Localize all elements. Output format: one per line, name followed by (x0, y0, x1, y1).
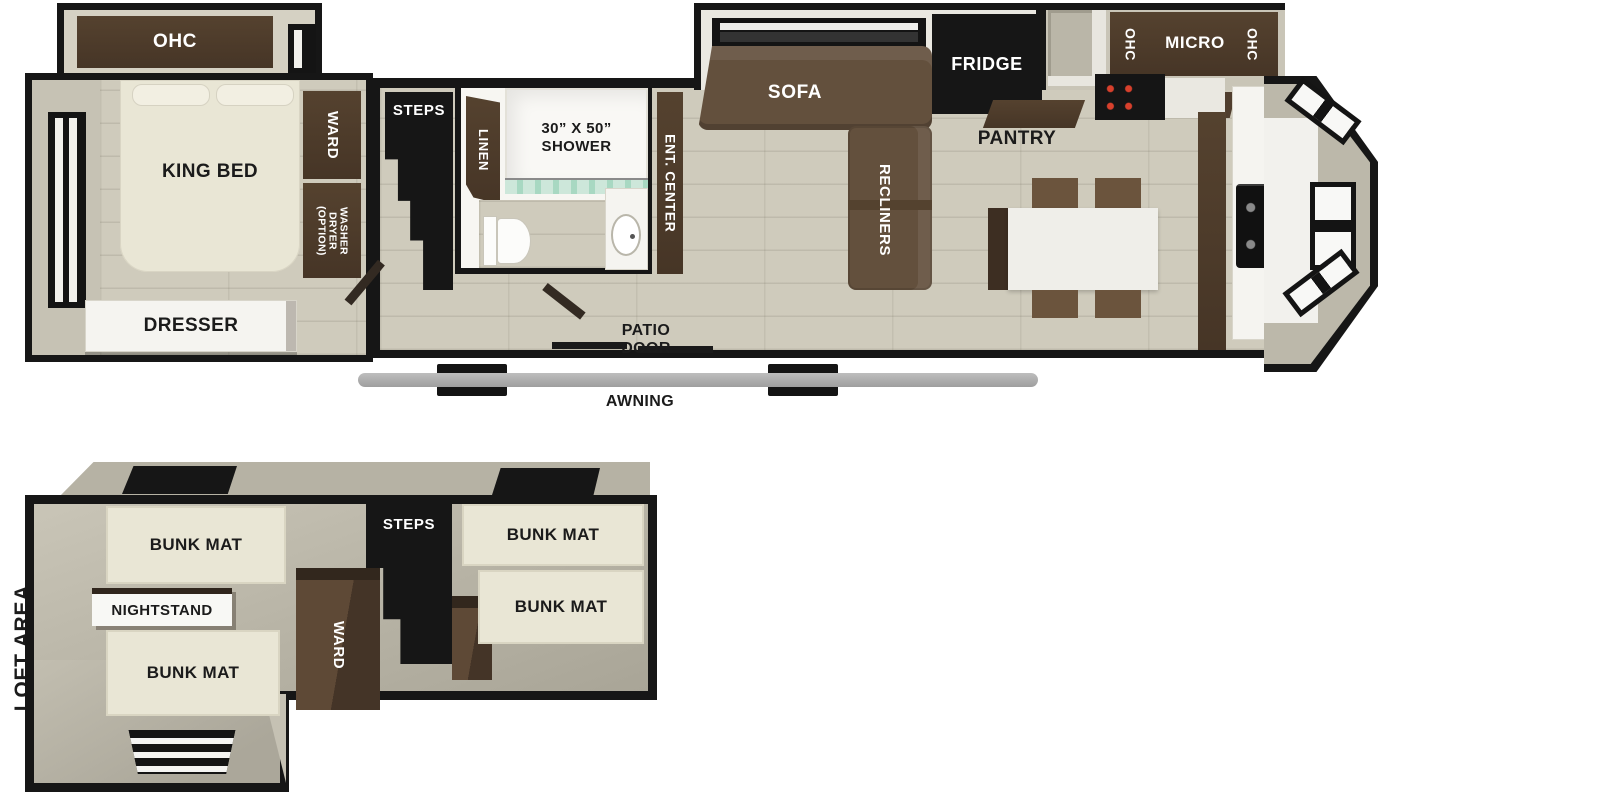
shower-label: 30” X 50” SHOWER (505, 118, 648, 158)
pantry-shelf (983, 100, 1085, 128)
toilet-icon (483, 216, 497, 266)
patio-door-label: PATIO DOOR (596, 330, 696, 350)
bunk-mat-ul-text: BUNK MAT (150, 535, 243, 555)
window-pane (720, 23, 918, 30)
bunk-mat-lower-right: BUNK MAT (478, 570, 644, 644)
ohc-left-text: OHC (1123, 28, 1138, 61)
bedroom-ward-cabinet: WARD (303, 91, 361, 179)
ent-center-label: ENT. CENTER (663, 134, 678, 232)
window-pane (69, 118, 77, 302)
washer-dryer-label: WASHER DRYER (OPTION) (315, 206, 348, 256)
micro-text: MICRO (1165, 33, 1225, 53)
ohc-right-text: OHC (1245, 28, 1260, 61)
toilet-bowl-icon (497, 218, 531, 264)
loft-vent-icon (124, 730, 240, 774)
washer-dryer-cabinet: WASHER DRYER (OPTION) (303, 183, 361, 278)
bunk-mat-ur-text: BUNK MAT (507, 525, 600, 545)
pillow (216, 84, 294, 106)
skylight-icon (492, 468, 600, 495)
bunk-mat-upper-left: BUNK MAT (106, 506, 286, 584)
recliners-label: RECLINERS (862, 140, 906, 280)
window-glass (720, 32, 918, 42)
ent-center-cabinet: ENT. CENTER (657, 92, 683, 274)
steps-loft-label: STEPS (366, 514, 452, 534)
bunk-mat-ll-text: BUNK MAT (147, 663, 240, 683)
bunk-mat-lr-text: BUNK MAT (515, 597, 608, 617)
dining-chair (1032, 178, 1078, 208)
nightstand: NIGHTSTAND (92, 588, 232, 626)
dining-chair (1095, 178, 1141, 208)
fridge-label: FRIDGE (951, 54, 1023, 75)
steps-main-text: STEPS (393, 102, 445, 119)
sofa-label: SOFA (730, 82, 860, 104)
dresser: DRESSER (85, 300, 297, 352)
linen-cabinet: LINEN (466, 96, 500, 204)
ward-label: WARD (324, 111, 340, 159)
drain-icon (630, 234, 635, 239)
nightstand-text: NIGHTSTAND (111, 602, 212, 619)
recliners-text: RECLINERS (876, 164, 892, 256)
pillow (132, 84, 210, 106)
awning-text: AWNING (606, 393, 674, 411)
dining-chair (1032, 290, 1078, 318)
bunk-mat-upper-right: BUNK MAT (462, 504, 644, 566)
loft-ward-cabinet: WARD (296, 568, 380, 710)
window-pane (55, 118, 63, 302)
bunk-mat-lower-left: BUNK MAT (106, 630, 280, 716)
bedroom-left-window-icon (48, 112, 86, 308)
kitchen-micro: MICRO (1148, 30, 1242, 56)
sofa-slideout-window-icon (712, 18, 926, 48)
bedroom-slideout-window-icon (288, 24, 316, 74)
sofa-text: SOFA (768, 82, 822, 104)
steps-main-label: STEPS (385, 100, 453, 120)
kitchen-ohc-right: OHC (1240, 18, 1264, 70)
fridge: FRIDGE (932, 14, 1042, 114)
kitchen-counter-strip (1198, 112, 1226, 350)
pantry-text: PANTRY (978, 128, 1056, 150)
awning-bar (358, 373, 1038, 387)
bedroom-ohc-label: OHC (153, 31, 197, 53)
shower-text: 30” X 50” SHOWER (541, 120, 611, 156)
patio-door-text: PATIO DOOR (596, 322, 696, 358)
pantry-label: PANTRY (962, 128, 1072, 150)
dresser-label: DRESSER (144, 315, 239, 337)
skylight-icon (122, 466, 237, 494)
loft-ward-text: WARD (330, 621, 346, 669)
awning-label: AWNING (575, 392, 705, 412)
bedroom-ohc-cabinet: OHC (77, 16, 273, 68)
range-cooktop (1095, 74, 1165, 120)
king-bed-label: KING BED (130, 160, 290, 184)
dining-table (1008, 208, 1158, 290)
dining-bench (988, 208, 1010, 290)
linen-label: LINEN (476, 129, 490, 171)
dining-chair (1095, 290, 1141, 318)
steps-loft-text: STEPS (383, 516, 435, 533)
rv-floorplan-scene: OHC KING BED WARD WASHER DRYER (OPTION) … (0, 0, 1600, 793)
bath-sink-icon (611, 214, 641, 256)
window-pane (294, 30, 302, 68)
king-bed-text: KING BED (162, 161, 258, 183)
kitchen-ohc-left: OHC (1118, 18, 1142, 70)
